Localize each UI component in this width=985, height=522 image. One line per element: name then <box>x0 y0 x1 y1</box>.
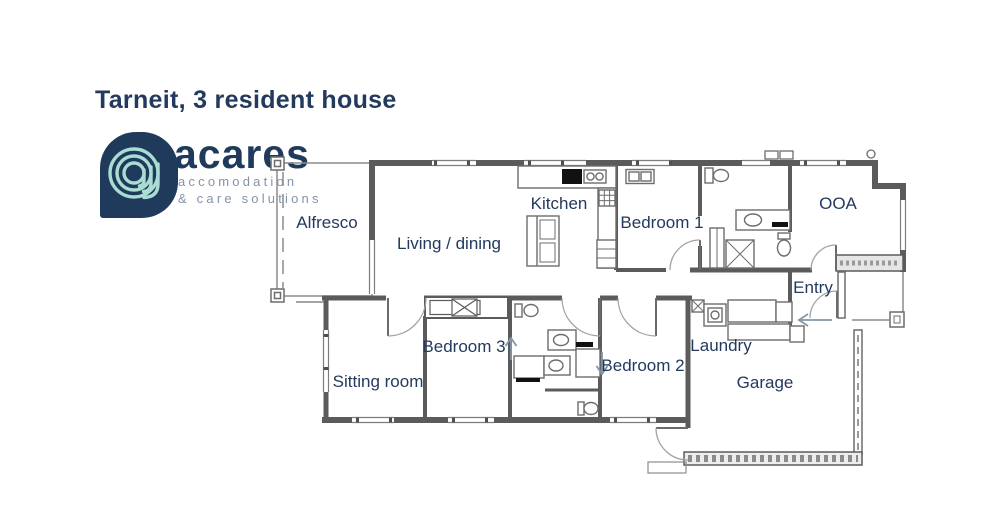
porch-structure <box>836 255 904 327</box>
entry-left-arrow-icon <box>799 314 832 326</box>
room-label-sitting-room: Sitting room <box>333 372 424 392</box>
room-label-laundry: Laundry <box>690 336 751 356</box>
room-label-bedroom-2: Bedroom 2 <box>601 356 684 376</box>
room-label-ooa: OOA <box>819 194 857 214</box>
room-label-garage: Garage <box>737 373 794 393</box>
room-label-kitchen: Kitchen <box>531 194 588 214</box>
bathroom-fixtures <box>514 304 600 415</box>
floorplan-page: Tarneit, 3 resident house acares accomod… <box>0 0 985 522</box>
room-label-alfresco: Alfresco <box>296 213 357 233</box>
room-label-bedroom-3: Bedroom 3 <box>422 337 505 357</box>
ensuite-fixtures <box>705 168 791 268</box>
room-label-bedroom-1: Bedroom 1 <box>620 213 703 233</box>
room-label-entry: Entry <box>793 278 833 298</box>
garage-structure <box>648 330 862 473</box>
floor-plan-drawing <box>0 0 985 522</box>
room-label-living-dining: Living / dining <box>397 234 501 254</box>
linen-cupboard <box>425 297 508 318</box>
